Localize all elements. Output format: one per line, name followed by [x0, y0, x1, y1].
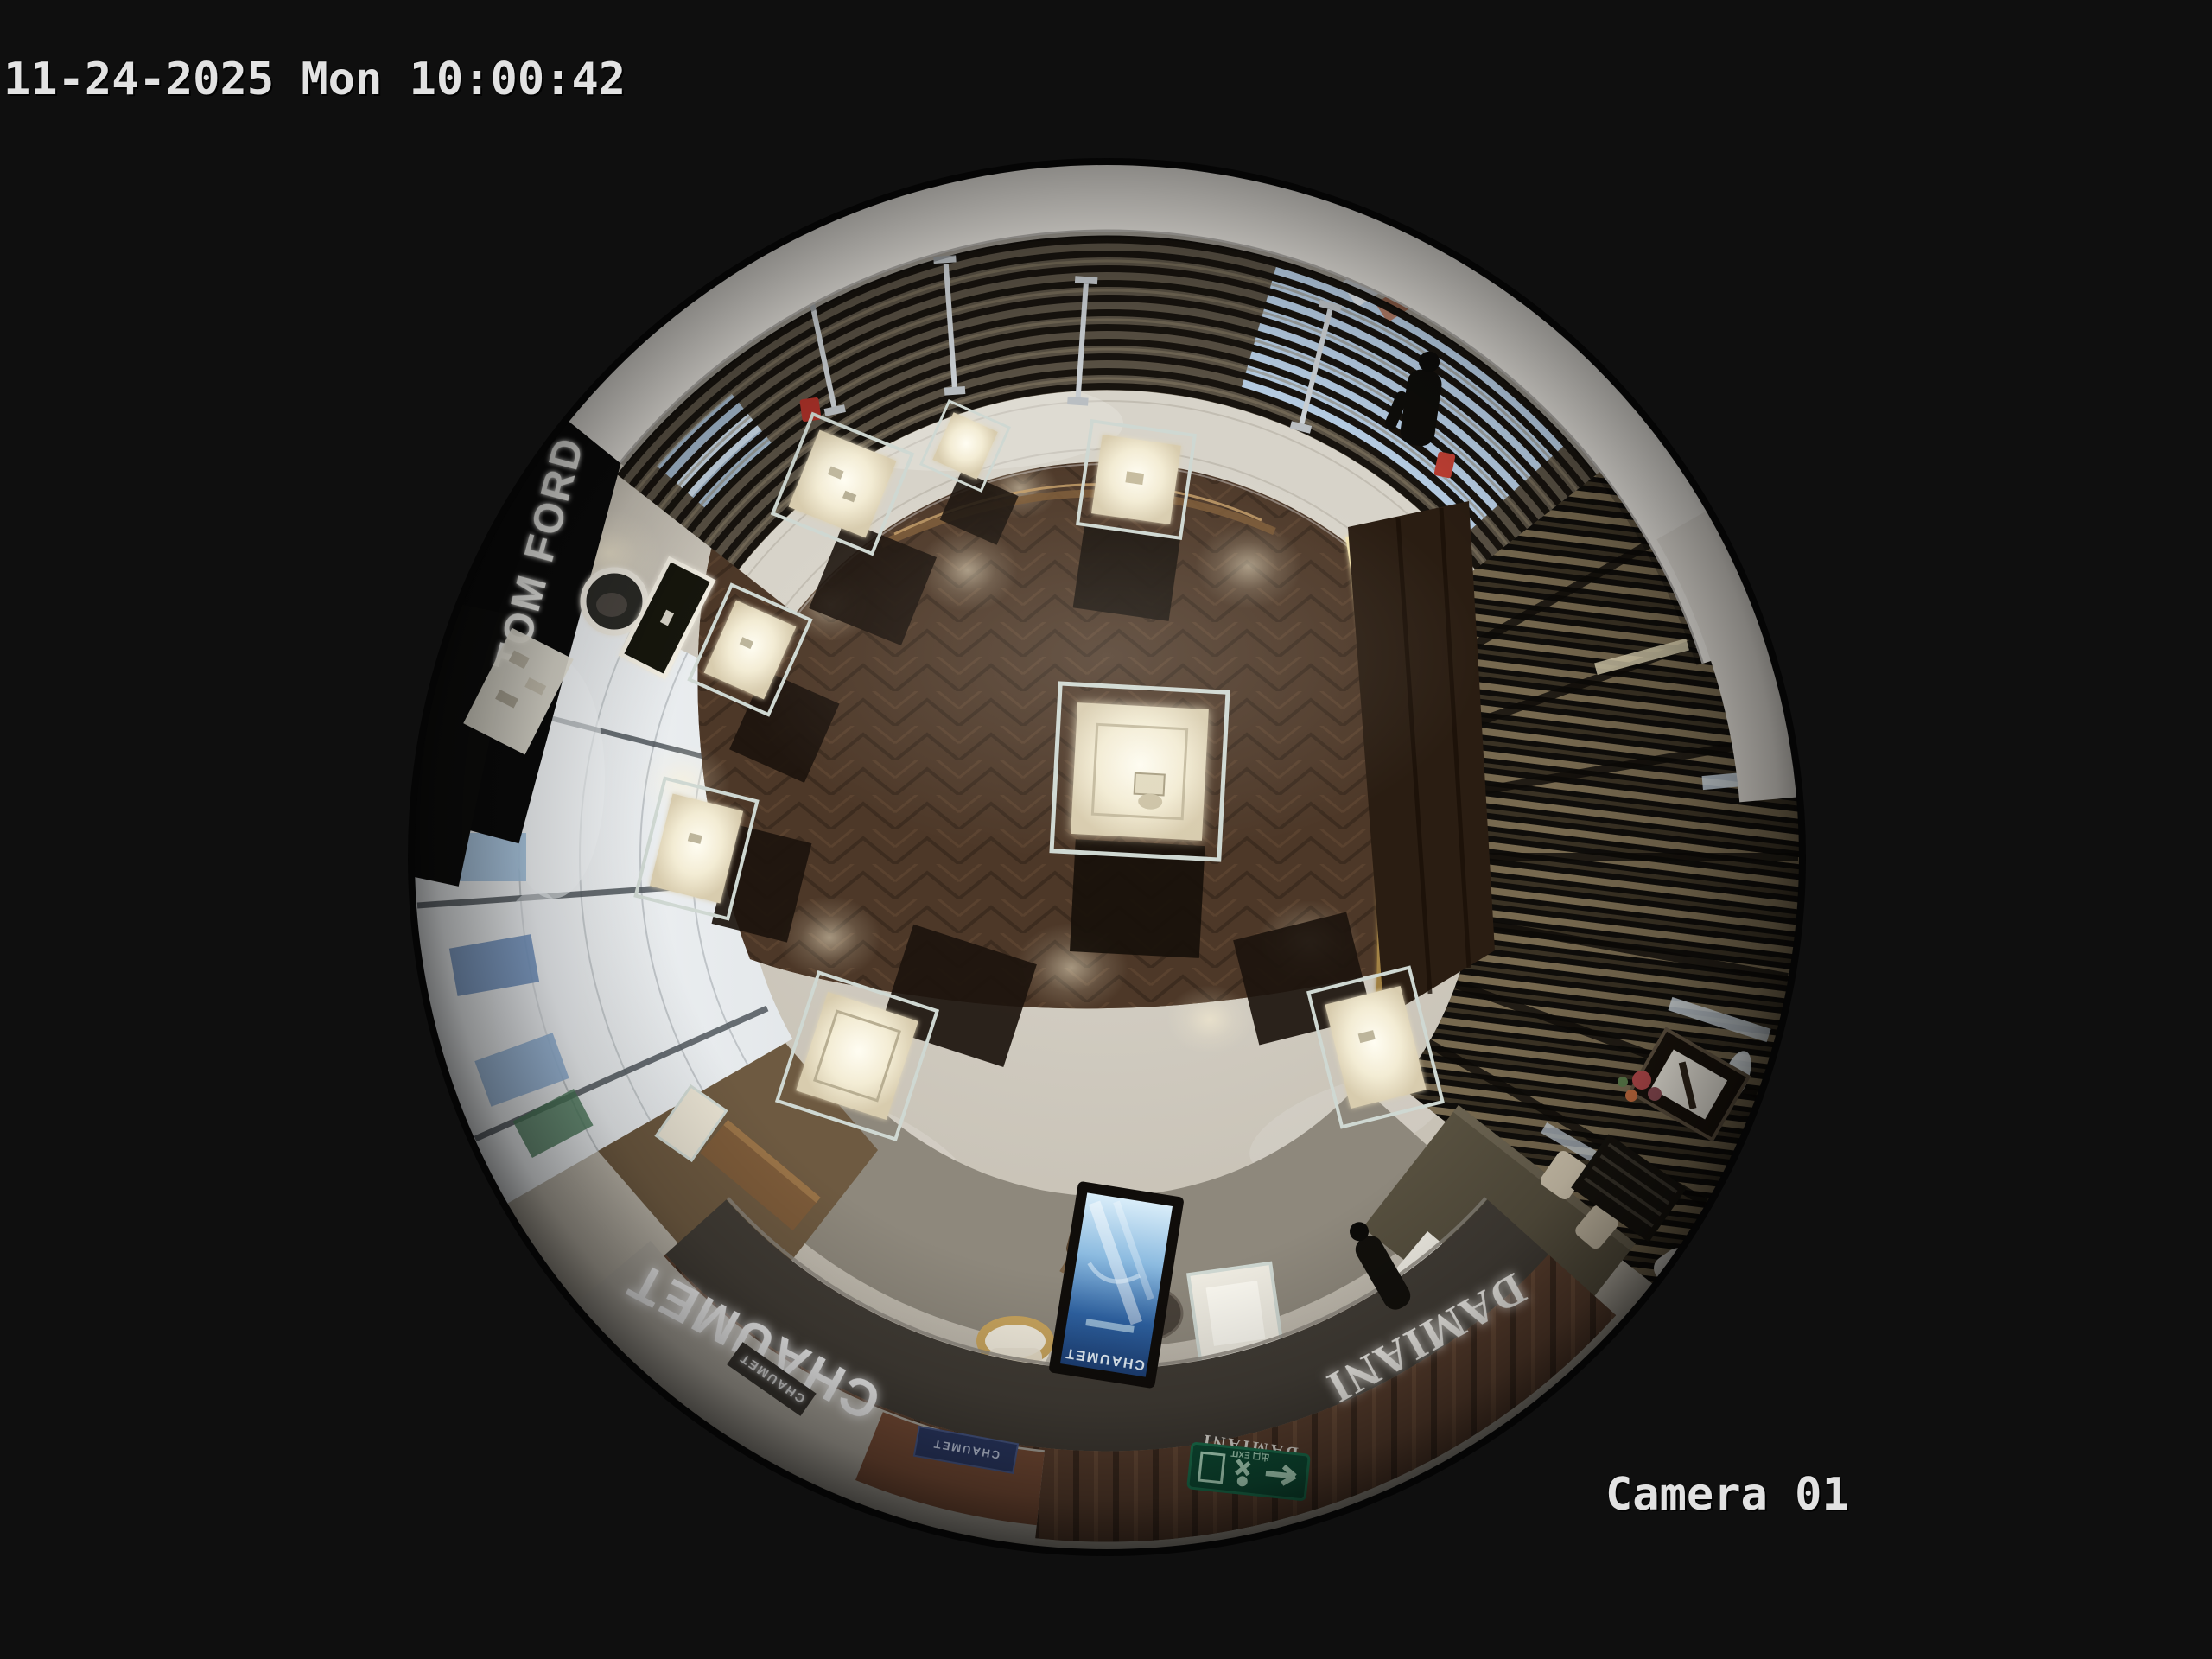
- cctv-frame: CHAUMET CHAUMET DAMIANI DAMIANI CHAUMET …: [0, 0, 2212, 1659]
- fisheye-view: CHAUMET CHAUMET DAMIANI DAMIANI CHAUMET …: [0, 0, 2212, 1659]
- lens-vignette: [413, 163, 1801, 1551]
- osd-camera-label: Camera 01: [1605, 1469, 1849, 1521]
- osd-timestamp: 11-24-2025 Mon 10:00:42: [3, 54, 626, 105]
